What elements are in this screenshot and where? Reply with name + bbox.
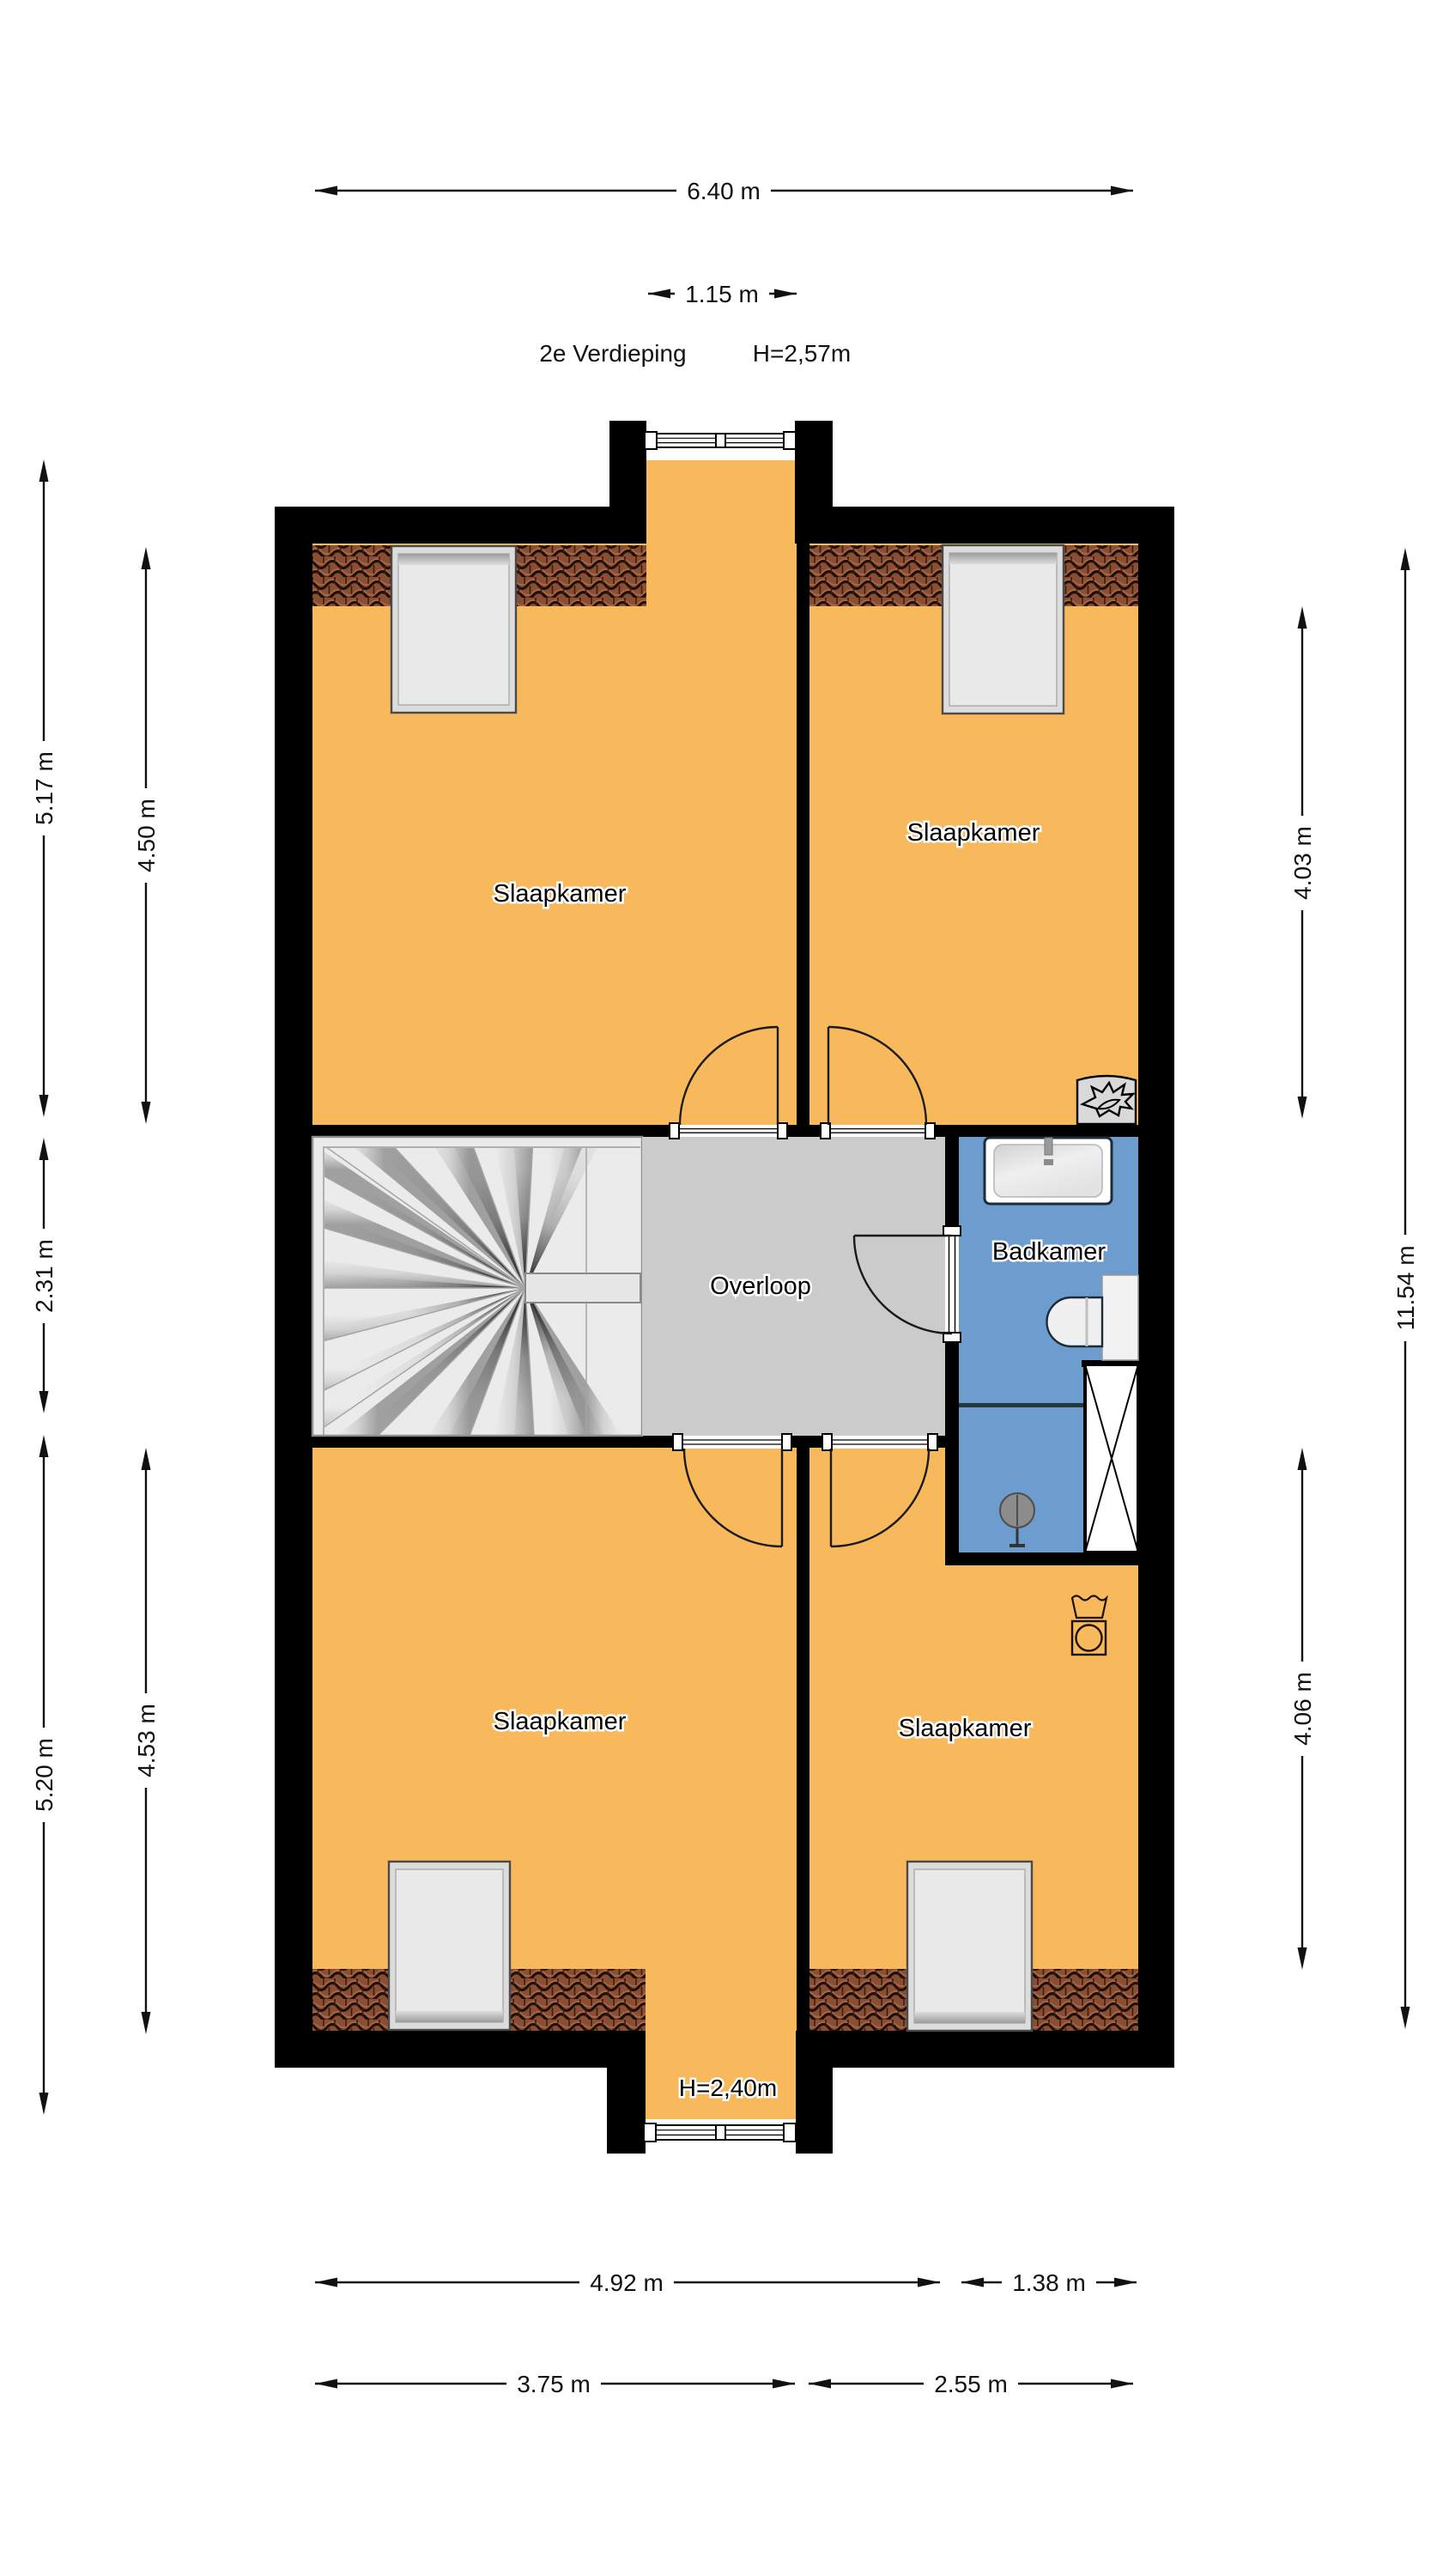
svg-text:Slaapkamer: Slaapkamer (907, 819, 1040, 847)
svg-text:4.92 m: 4.92 m (590, 2269, 664, 2296)
svg-text:5.17 m: 5.17 m (31, 751, 58, 825)
svg-text:4.53 m: 4.53 m (133, 1704, 160, 1777)
svg-text:4.50 m: 4.50 m (133, 799, 160, 872)
svg-text:11.54 m: 11.54 m (1392, 1245, 1419, 1330)
svg-text:H=2,40m: H=2,40m (679, 2075, 777, 2101)
svg-text:1.15 m: 1.15 m (685, 281, 759, 307)
svg-text:Overloop: Overloop (710, 1273, 811, 1300)
svg-text:Slaapkamer: Slaapkamer (899, 1715, 1032, 1742)
svg-text:2.55 m: 2.55 m (934, 2371, 1008, 2397)
svg-text:3.75 m: 3.75 m (517, 2371, 591, 2397)
svg-text:2e Verdieping: 2e Verdieping (539, 340, 686, 367)
svg-text:Badkamer: Badkamer (992, 1238, 1106, 1266)
svg-text:2.31 m: 2.31 m (31, 1239, 58, 1313)
svg-text:H=2,57m: H=2,57m (753, 340, 851, 367)
svg-text:Slaapkamer: Slaapkamer (494, 1708, 627, 1735)
svg-text:5.20 m: 5.20 m (31, 1738, 58, 1812)
svg-text:4.06 m: 4.06 m (1289, 1672, 1316, 1746)
svg-text:1.38 m: 1.38 m (1012, 2269, 1086, 2296)
svg-text:Slaapkamer: Slaapkamer (494, 880, 627, 908)
svg-text:6.40 m: 6.40 m (687, 178, 761, 204)
svg-text:4.03 m: 4.03 m (1289, 826, 1316, 900)
